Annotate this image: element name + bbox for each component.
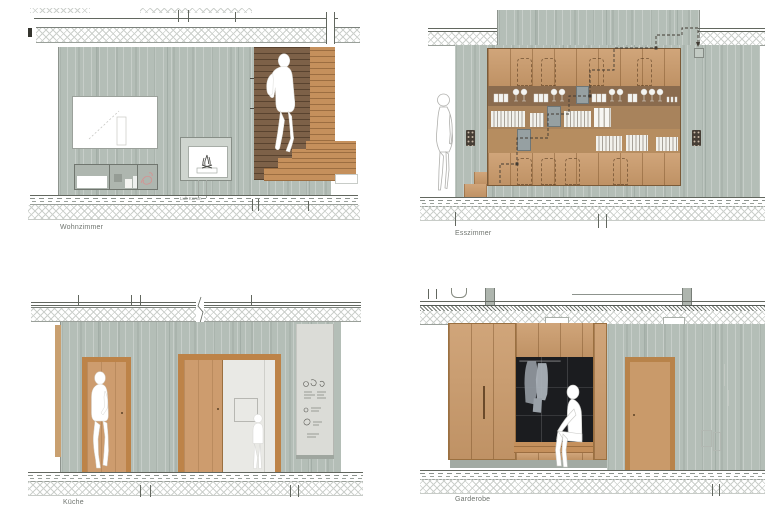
board-shadow	[296, 455, 334, 459]
fixture-outline	[451, 288, 467, 298]
dimension-tick	[712, 484, 713, 496]
sideboard-divider	[109, 165, 110, 189]
socket-outline	[713, 432, 721, 451]
ceiling-slab-hatch	[36, 27, 360, 43]
person-silhouette-standing	[84, 371, 118, 473]
sideboard-divider	[137, 165, 138, 189]
junction-box	[694, 48, 704, 58]
dimension-tick	[251, 295, 252, 305]
door-kueche-center	[178, 354, 281, 472]
wall-mark	[728, 390, 729, 406]
dimension-tick	[428, 289, 429, 299]
dimension-tick	[308, 201, 309, 211]
sideboard-compartment	[77, 176, 107, 188]
dimension-tick	[140, 485, 141, 497]
dimension-tick	[298, 485, 299, 497]
label-leader	[455, 212, 456, 226]
elevation-esszimmer: Esszimmer	[420, 8, 765, 240]
dimension-tick	[140, 295, 141, 305]
dimension-tick	[719, 484, 720, 496]
dimension-tick	[290, 485, 291, 497]
door-leaf	[184, 360, 223, 472]
dimension-tick	[598, 214, 599, 228]
room-label: Küche	[63, 499, 84, 506]
floor-slab-hatch	[28, 205, 360, 220]
railing-post	[485, 288, 495, 305]
railing-post	[682, 288, 692, 305]
door-garderobe	[625, 357, 675, 470]
floor-slab-hatch	[420, 479, 765, 494]
elevation-garderobe: Garderobe	[420, 288, 765, 510]
stair-mark	[250, 78, 254, 79]
ceiling-line	[420, 301, 765, 302]
dimension-tick	[606, 214, 607, 228]
person-silhouette-walking	[260, 53, 306, 155]
floor-slab-hatch	[28, 481, 363, 496]
fireplace	[180, 137, 232, 181]
elevation-wohnzimmer: Luft Kamin Wohnzimmer	[28, 8, 360, 240]
dimension-tick	[131, 295, 132, 305]
dimension-tick	[258, 199, 259, 211]
wardrobe-handle	[483, 386, 485, 419]
floor-slab-hatch	[420, 206, 765, 221]
ceiling-line	[34, 18, 338, 19]
door-handle	[633, 414, 635, 416]
elevation-sheet: Luft Kamin Wohnzimmer	[0, 0, 780, 520]
door-handle	[217, 408, 219, 410]
fire-icon	[192, 150, 222, 176]
dimension-tick	[252, 199, 253, 211]
upper-floor-line	[572, 294, 682, 295]
wardrobe-doors	[448, 323, 516, 460]
stair-base-trim	[335, 174, 358, 184]
person-silhouette-seated	[548, 384, 594, 470]
dimension-tick	[188, 10, 189, 22]
stair-mark	[250, 108, 254, 109]
break-symbol	[326, 12, 335, 44]
stair-step	[306, 141, 356, 150]
stair-wood-panel	[310, 47, 335, 141]
upper-floor-hatch	[30, 8, 90, 13]
dimension-tick	[178, 10, 179, 22]
dimension-tick	[78, 295, 79, 305]
chalkboard-doodles	[301, 376, 329, 446]
section-marker	[28, 28, 32, 37]
elevation-kueche: Küche	[28, 295, 363, 510]
person-silhouette-child	[248, 413, 268, 472]
wall-mark	[724, 364, 725, 386]
pink-sketch	[139, 169, 156, 188]
room-label: Esszimmer	[455, 230, 491, 237]
deco-box	[114, 174, 122, 182]
sideboard	[74, 164, 158, 190]
stair-step	[278, 158, 356, 169]
dimension-tick	[150, 485, 151, 497]
chalkboard	[296, 324, 334, 455]
dimension-tick	[235, 12, 236, 22]
tv-sketch	[73, 97, 157, 148]
door-handle	[121, 412, 123, 414]
dimension-tick	[436, 289, 437, 299]
room-label: Garderobe	[455, 496, 490, 503]
tv-screen	[72, 96, 158, 149]
deco-box	[133, 176, 137, 188]
break-symbol	[196, 297, 204, 323]
wardrobe-side-panel	[593, 323, 607, 460]
socket-outline	[701, 430, 712, 447]
deco-box	[125, 179, 132, 188]
wood-side-panel	[55, 325, 61, 457]
room-label: Wohnzimmer	[60, 224, 103, 231]
